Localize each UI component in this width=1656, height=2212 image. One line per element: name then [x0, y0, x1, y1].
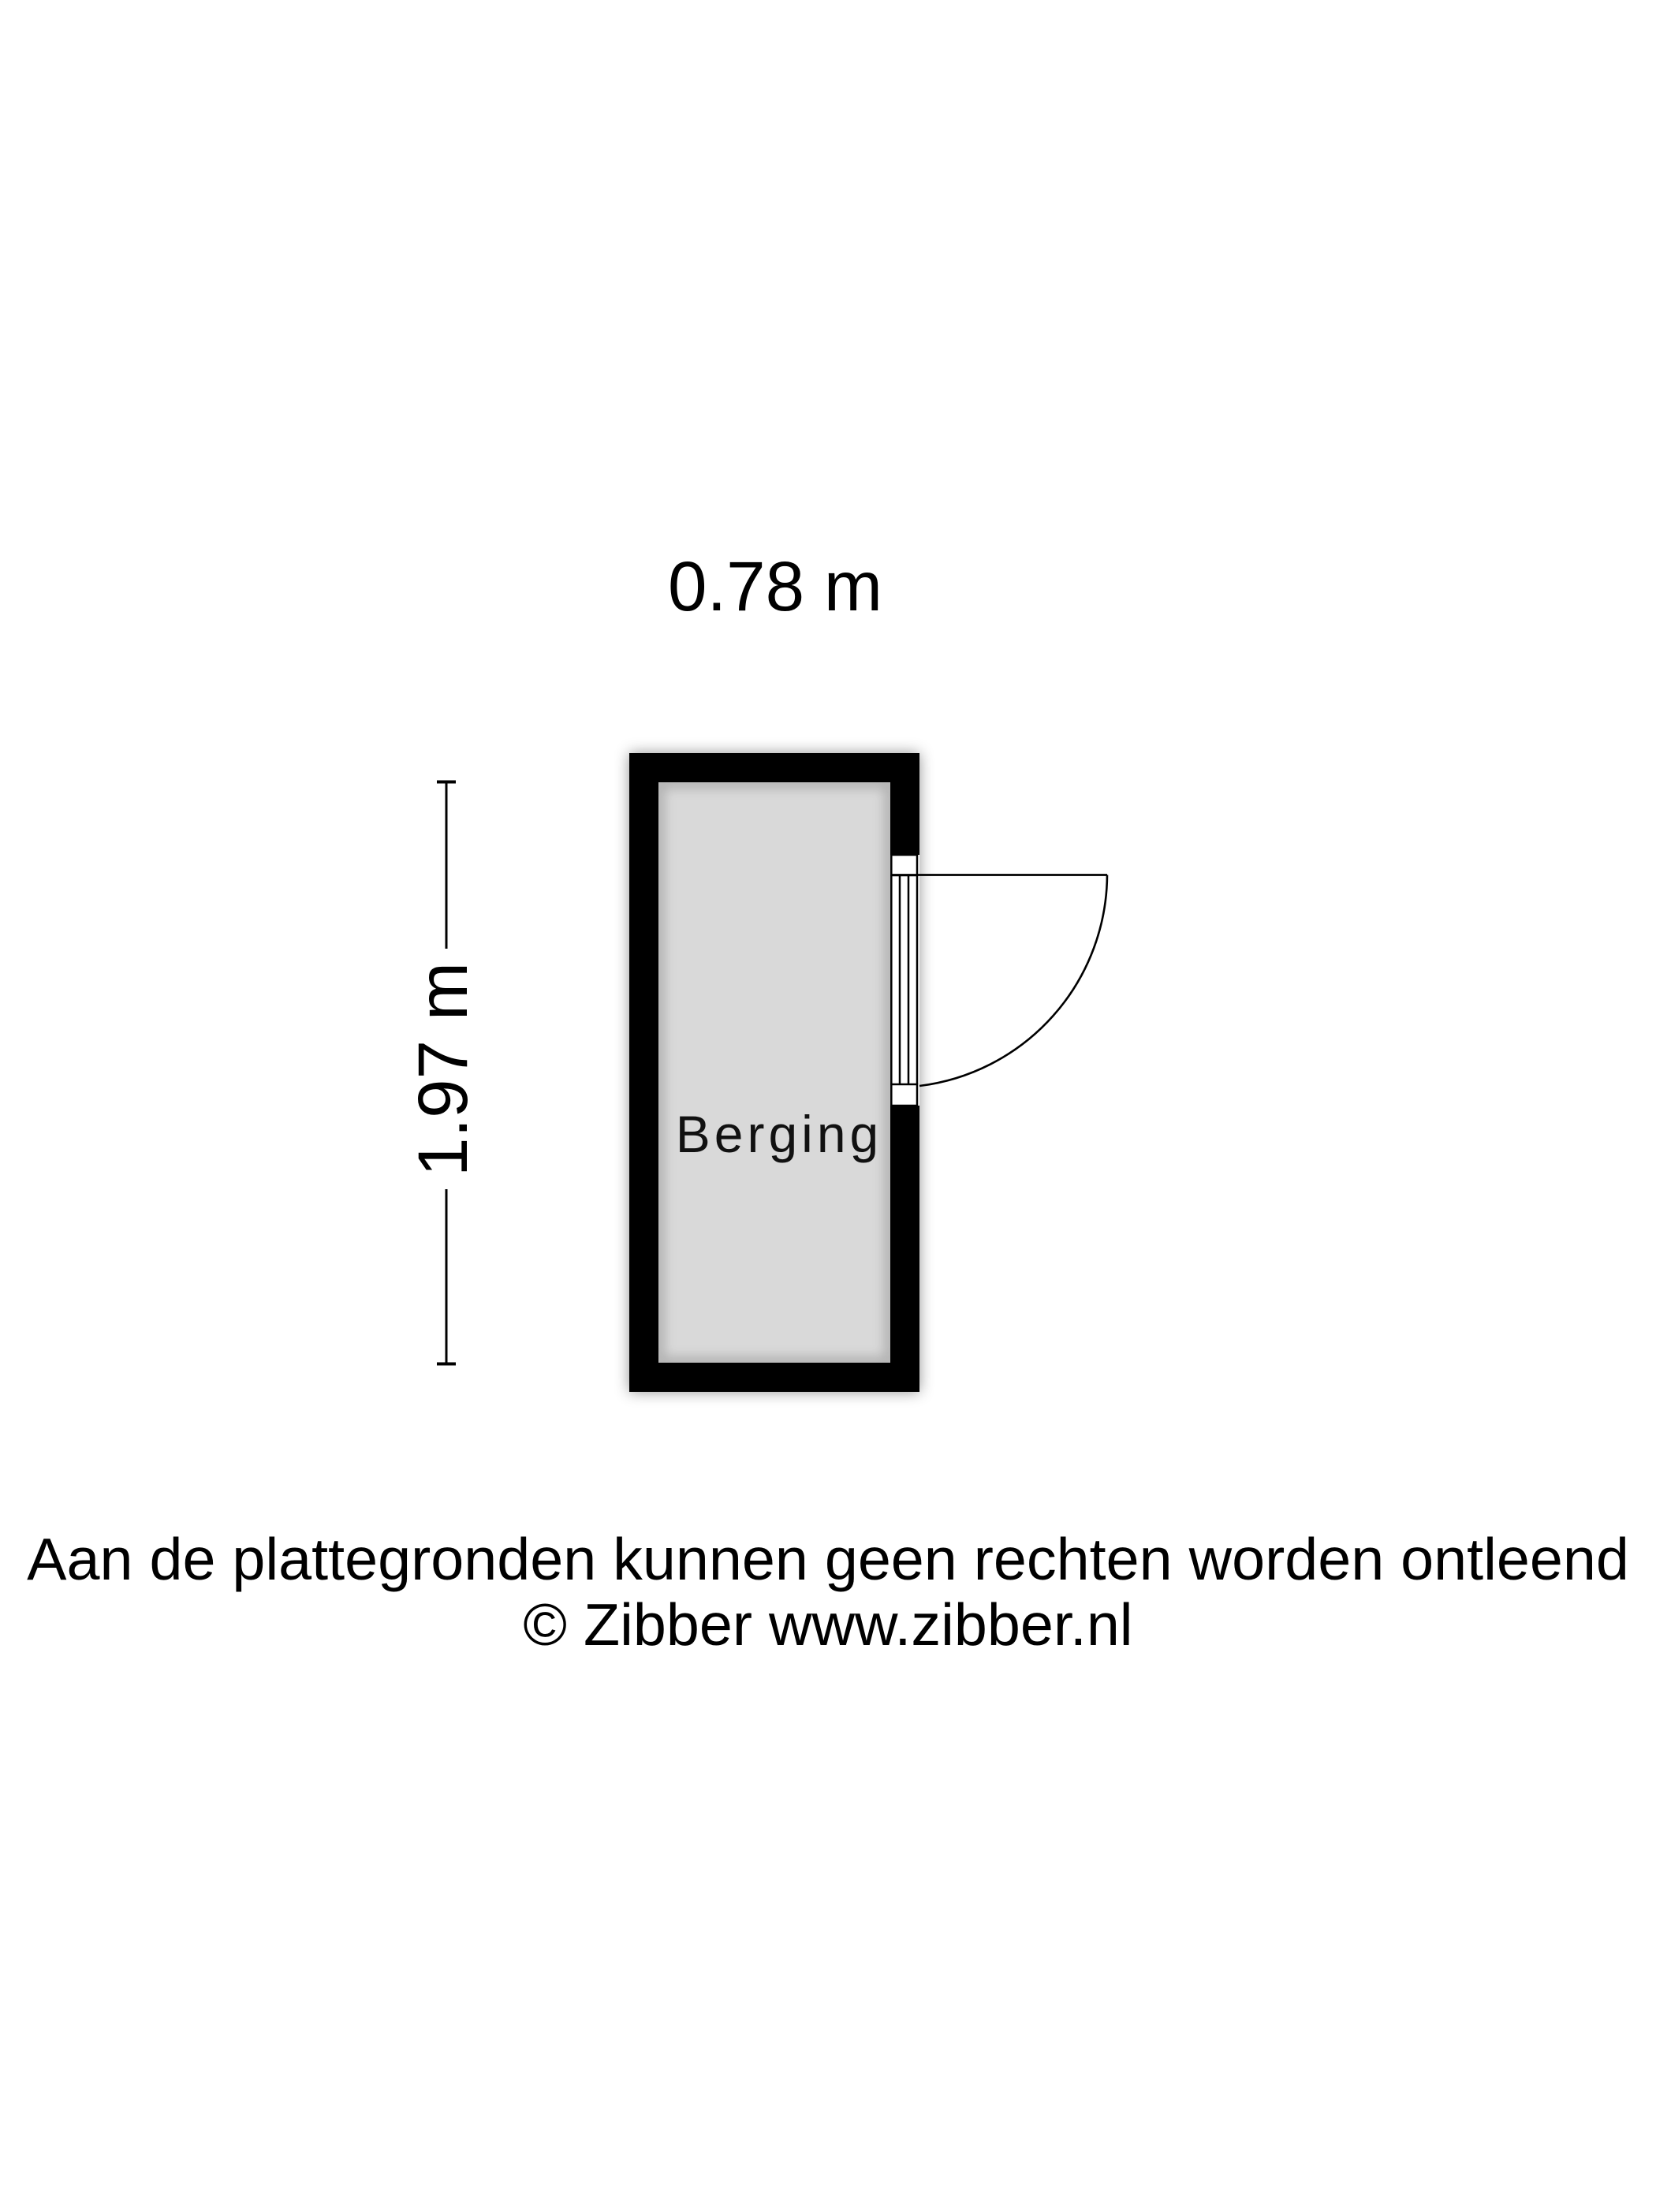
- svg-text:Aan de plattegronden kunnen ge: Aan de plattegronden kunnen geen rechten…: [27, 1526, 1629, 1592]
- svg-text:© Zibber www.zibber.nl: © Zibber www.zibber.nl: [523, 1591, 1132, 1658]
- svg-text:Berging: Berging: [676, 1105, 883, 1163]
- svg-text:1.97 m: 1.97 m: [403, 962, 482, 1177]
- svg-text:0.78 m: 0.78 m: [668, 546, 882, 625]
